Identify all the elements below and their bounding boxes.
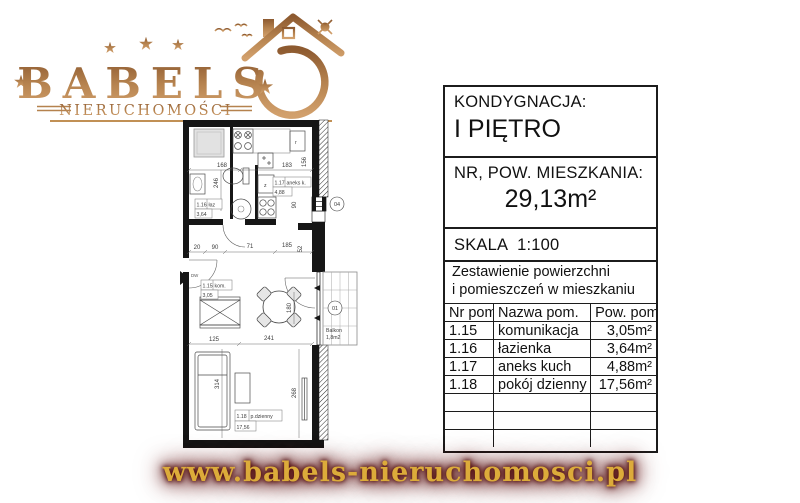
scale-label: SKALA <box>454 236 508 254</box>
svg-text:168: 168 <box>217 163 228 169</box>
area-table: Nr pom. Nazwa pom. Pow. pom. 1.15 komuni… <box>445 304 656 447</box>
room-label-kitchen: 1.17 aneks k. 4,88 <box>273 177 311 196</box>
balcony: 01 Balkon 1,8m2 <box>314 272 357 345</box>
hob-top <box>233 129 253 153</box>
svg-text:aneks k.: aneks k. <box>287 181 306 187</box>
nr-pow-label: NR, POW. MIESZKANIA: <box>454 164 647 183</box>
table-row-empty <box>445 412 656 430</box>
col-header-name: Nazwa pom. <box>494 304 591 322</box>
toilet <box>223 168 249 184</box>
svg-text:268: 268 <box>292 387 298 398</box>
svg-text:90: 90 <box>212 245 219 251</box>
svg-text:г: г <box>295 140 297 146</box>
svg-text:246: 246 <box>214 177 220 188</box>
radiator <box>302 378 307 420</box>
table-title-line2: i pomieszczeń w mieszkaniu <box>452 282 649 300</box>
room-label-bathroom: 1.16 łaz 3,64 <box>195 199 222 218</box>
floor-plan: 04 01 Balkon 1,8m2 DW <box>178 113 368 458</box>
table-header-row: Nr pom. Nazwa pom. Pow. pom. <box>445 304 656 322</box>
svg-text:1.15: 1.15 <box>203 284 213 290</box>
svg-text:kom.: kom. <box>215 284 226 290</box>
svg-text:z: z <box>264 183 267 189</box>
svg-text:4,88: 4,88 <box>275 190 285 196</box>
svg-text:183: 183 <box>282 163 293 169</box>
nr-pow-value: 29,13m² <box>454 185 647 214</box>
svg-text:p.dzienny: p.dzienny <box>251 414 274 420</box>
fridge: г <box>290 131 305 151</box>
website-link[interactable]: www.babels-nieruchomosci.pl <box>163 457 638 488</box>
table-title-line1: Zestawienie powierzchni <box>452 264 649 282</box>
bath-sink <box>190 174 205 194</box>
svg-text:łaz: łaz <box>209 203 216 209</box>
balcony-name: Balkon <box>326 328 342 334</box>
svg-text:90: 90 <box>292 201 298 208</box>
hatched-wall <box>319 345 328 440</box>
hatched-wall <box>319 120 328 197</box>
hob-lower <box>258 197 276 218</box>
svg-text:125: 125 <box>209 337 220 343</box>
svg-text:241: 241 <box>264 336 275 342</box>
marker-01: 01 <box>332 306 338 312</box>
entry-label: DW <box>191 273 199 278</box>
sun-icon <box>315 17 335 37</box>
svg-text:1.16: 1.16 <box>197 203 207 209</box>
svg-text:185: 185 <box>282 243 293 249</box>
room-label-living: 1.18 p.dzienny 17,56 <box>235 410 282 431</box>
table-row: 1.17 aneks kuch 4,88m² <box>445 358 656 376</box>
kitchen-sink <box>258 153 273 168</box>
balcony-area: 1,8m2 <box>326 335 341 341</box>
room-label-corridor: 1.15 kom. 3,05 <box>201 280 232 299</box>
col-header-area: Pow. pom. <box>591 304 656 322</box>
kondygnacja-section: KONDYGNACJA: I PIĘTRO <box>445 87 656 158</box>
brand-name: BABELS <box>17 59 272 108</box>
col-header-nr: Nr pom. <box>445 304 494 322</box>
scale-section: SKALA 1:100 <box>445 229 656 262</box>
wardrobe <box>200 297 240 328</box>
table-row: 1.16 łazienka 3,64m² <box>445 340 656 358</box>
kondygnacja-value: I PIĘTRO <box>454 115 647 144</box>
svg-text:156: 156 <box>302 156 308 167</box>
apartment-area-section: NR, POW. MIESZKANIA: 29,13m² <box>445 158 656 229</box>
scale-value: 1:100 <box>517 236 559 254</box>
birds-icon <box>215 24 252 36</box>
svg-text:20: 20 <box>194 245 201 251</box>
coffee-table <box>235 373 250 403</box>
svg-text:17,56: 17,56 <box>237 425 250 431</box>
svg-text:71: 71 <box>247 244 254 250</box>
svg-text:180: 180 <box>287 302 293 313</box>
svg-text:1.18: 1.18 <box>237 414 247 420</box>
svg-text:314: 314 <box>215 378 221 389</box>
footer-bar: www.babels-nieruchomosci.pl <box>0 451 800 497</box>
svg-text:3,64: 3,64 <box>197 212 207 218</box>
svg-text:52: 52 <box>298 245 304 252</box>
kondygnacja-label: KONDYGNACJA: <box>454 93 647 112</box>
table-title: Zestawienie powierzchni i pomieszczeń w … <box>445 262 656 304</box>
dishwasher: z <box>258 175 274 193</box>
window-symbol <box>312 197 326 211</box>
shower <box>194 129 224 157</box>
dining-table <box>256 286 302 328</box>
svg-text:3,05: 3,05 <box>203 293 213 299</box>
page: BABELS NIERUCHOMOŚCI <box>0 0 800 503</box>
svg-text:1.17: 1.17 <box>275 181 285 187</box>
table-row: 1.15 komunikacja 3,05m² <box>445 322 656 340</box>
furniture: г z <box>190 129 307 430</box>
washer <box>231 199 251 219</box>
counter <box>253 129 290 153</box>
sofa <box>195 352 230 430</box>
table-row-empty <box>445 430 656 448</box>
marker-04: 04 <box>334 202 340 208</box>
info-panel: KONDYGNACJA: I PIĘTRO NR, POW. MIESZKANI… <box>443 85 658 453</box>
table-row: 1.18 pokój dzienny 17,56m² <box>445 376 656 394</box>
table-row-empty <box>445 394 656 412</box>
